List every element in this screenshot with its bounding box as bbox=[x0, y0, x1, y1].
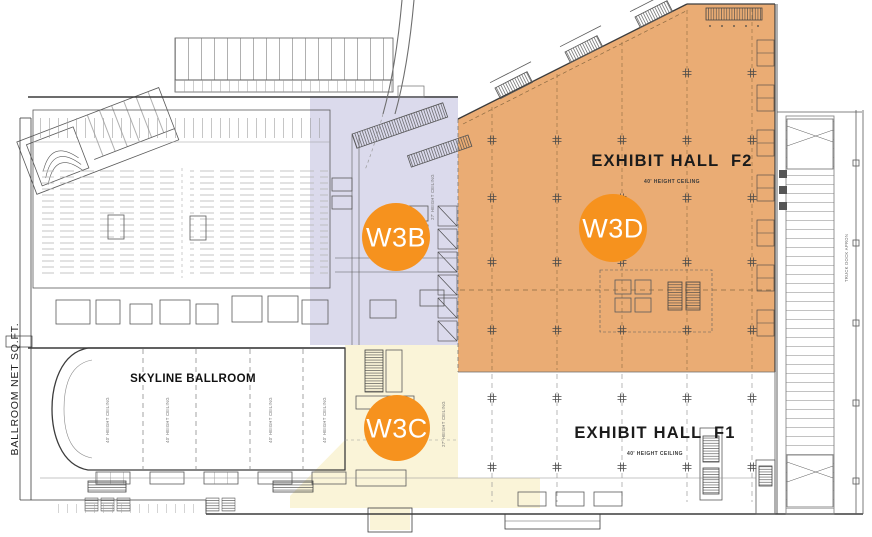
floor-plan-page: EXHIBIT HALL F2 40' HEIGHT CEILING EXHIB… bbox=[0, 0, 872, 537]
exhibit-hall-f2-label: EXHIBIT HALL F2 bbox=[591, 152, 752, 170]
mid-corridor-rooms bbox=[28, 296, 345, 348]
w3b-ceiling-label: 27' HEIGHT CEILING bbox=[430, 174, 435, 220]
zone-badge-w3b[interactable]: W3B bbox=[362, 203, 430, 271]
top-room-row bbox=[175, 38, 393, 92]
exhibit-hall-f1-label: EXHIBIT HALL F1 bbox=[574, 424, 735, 442]
ballroom-section-ceiling-label: 40' HEIGHT CEILING bbox=[322, 397, 327, 443]
w3c-badge-label: W3C bbox=[366, 413, 428, 443]
floor-plan: EXHIBIT HALL F2 40' HEIGHT CEILING EXHIB… bbox=[0, 0, 872, 537]
zone-badge-w3c[interactable]: W3C bbox=[364, 395, 430, 461]
f1-ceiling-label: 40' HEIGHT CEILING bbox=[627, 451, 683, 457]
skyline-ballroom-label: SKYLINE BALLROOM bbox=[130, 373, 256, 385]
zone-badge-w3d[interactable]: W3D bbox=[579, 194, 647, 262]
w3b-badge-label: W3B bbox=[366, 222, 426, 252]
left-hall bbox=[33, 110, 330, 288]
ballroom-net-sqft-label: BALLROOM NET SQ.FT. bbox=[9, 323, 21, 456]
zone-w3d-overlay[interactable] bbox=[458, 4, 775, 372]
skyline-ballroom-outline bbox=[52, 348, 346, 484]
f2-ceiling-label: 40' HEIGHT CEILING bbox=[644, 179, 700, 185]
ballroom-section-ceiling-label: 40' HEIGHT CEILING bbox=[165, 397, 170, 443]
w3c-ceiling-label: 27' HEIGHT CEILING bbox=[441, 401, 446, 447]
ballroom-section-ceiling-label: 40' HEIGHT CEILING bbox=[268, 397, 273, 443]
w3d-badge-label: W3D bbox=[582, 213, 644, 243]
truck-dock-apron-label: TRUCK DOCK APRON bbox=[844, 234, 849, 282]
ballroom-section-ceiling-label: 40' HEIGHT CEILING bbox=[105, 397, 110, 443]
